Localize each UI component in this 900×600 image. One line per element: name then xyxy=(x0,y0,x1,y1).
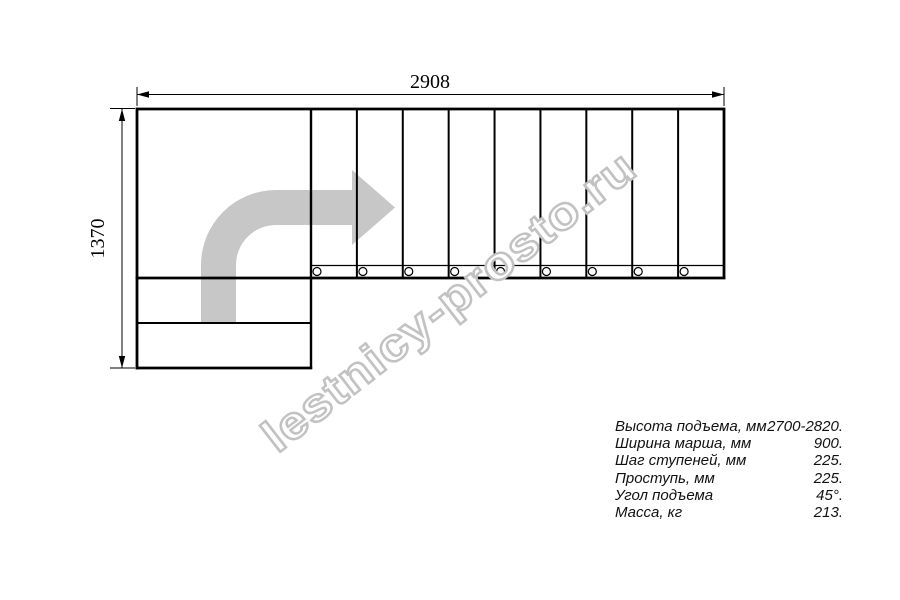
baluster-circle xyxy=(634,268,642,276)
spec-row: Угол подъема 45°. xyxy=(615,487,843,504)
baluster-circle xyxy=(542,268,550,276)
spec-table: Высота подъема, мм 2700-2820. Ширина мар… xyxy=(615,418,843,521)
spec-label: Шаг ступеней, мм xyxy=(615,452,746,469)
spec-value: 225. xyxy=(814,470,843,487)
baluster-circle xyxy=(359,268,367,276)
staircase-drawing-page: 2908 1370 lestnicy-prosto.ru Высота подъ… xyxy=(0,0,900,600)
spec-value: 213. xyxy=(814,504,843,521)
spec-row: Масса, кг 213. xyxy=(615,504,843,521)
spec-label: Угол подъема xyxy=(615,487,713,504)
spec-label: Ширина марша, мм xyxy=(615,435,751,452)
dim-arrow-up-icon xyxy=(119,109,125,121)
dim-arrow-left-icon xyxy=(137,91,149,97)
spec-row: Шаг ступеней, мм 225. xyxy=(615,452,843,469)
baluster-circle xyxy=(588,268,596,276)
dim-arrow-right-icon xyxy=(712,91,724,97)
spec-label: Высота подъема, мм xyxy=(615,418,767,435)
travel-direction-arrow-icon xyxy=(201,170,395,324)
dimension-top-value: 2908 xyxy=(410,71,450,93)
baluster-circle xyxy=(680,268,688,276)
dimension-left-value: 1370 xyxy=(87,219,109,259)
dimension-left: 1370 xyxy=(87,109,135,369)
spec-value: 2700-2820. xyxy=(767,418,843,435)
baluster-circle xyxy=(405,268,413,276)
spec-label: Проступь, мм xyxy=(615,470,715,487)
spec-row: Высота подъема, мм 2700-2820. xyxy=(615,418,843,435)
baluster-circle xyxy=(313,268,321,276)
dim-arrow-down-icon xyxy=(119,356,125,368)
spec-value: 900. xyxy=(814,435,843,452)
spec-row: Ширина марша, мм 900. xyxy=(615,435,843,452)
spec-value: 45°. xyxy=(816,487,843,504)
spec-label: Масса, кг xyxy=(615,504,682,521)
spec-row: Проступь, мм 225. xyxy=(615,470,843,487)
spec-value: 225. xyxy=(814,452,843,469)
dimension-top: 2908 xyxy=(137,71,724,106)
